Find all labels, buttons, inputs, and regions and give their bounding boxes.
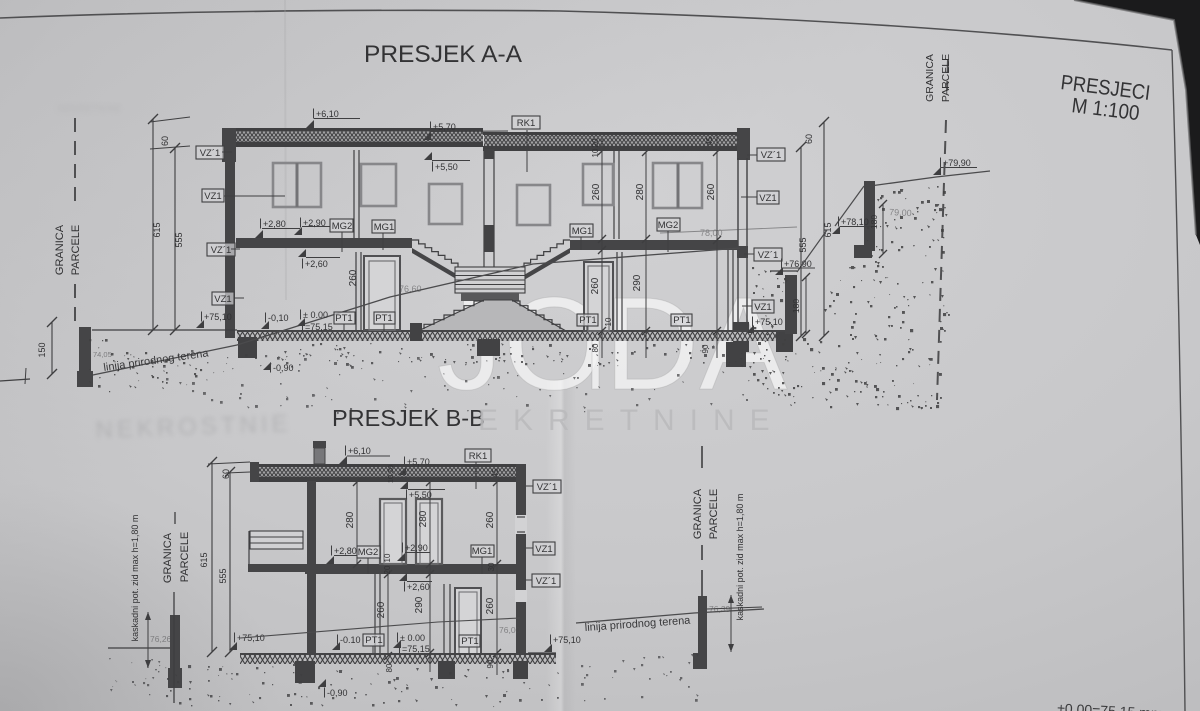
svg-text:555: 555 — [798, 237, 808, 252]
svg-text:+2,60: +2,60 — [407, 582, 430, 592]
svg-text:RK1: RK1 — [469, 451, 487, 462]
svg-text:10: 10 — [386, 475, 395, 483]
svg-text:76,26: 76,26 — [150, 634, 172, 644]
svg-text:GRANICA: GRANICA — [54, 224, 66, 275]
svg-text:+5,70: +5,70 — [407, 457, 430, 467]
svg-text:280: 280 — [345, 511, 356, 528]
svg-text:NEKRETNINE: NEKRETNINE — [58, 103, 122, 115]
svg-text:PARCELE: PARCELE — [179, 532, 191, 583]
svg-text:10: 10 — [591, 148, 600, 157]
svg-text:RK1: RK1 — [517, 118, 535, 129]
svg-text:260: 260 — [376, 601, 387, 618]
svg-text:260: 260 — [591, 183, 602, 200]
svg-text:80: 80 — [385, 663, 394, 672]
svg-text:PARCELE: PARCELE — [708, 489, 720, 540]
svg-text:+75,10: +75,10 — [204, 312, 232, 322]
svg-text:+6,10: +6,10 — [348, 446, 371, 456]
svg-text:GRANICA: GRANICA — [692, 488, 704, 539]
svg-text:+6,10: +6,10 — [316, 109, 339, 119]
svg-text:VZ´1: VZ´1 — [537, 482, 558, 493]
svg-text:260: 260 — [590, 277, 601, 294]
svg-text:PT1: PT1 — [461, 636, 478, 647]
svg-text:78,00: 78,00 — [700, 228, 723, 238]
svg-text:=75,15: =75,15 — [402, 644, 430, 654]
svg-text:76,00: 76,00 — [499, 625, 521, 635]
svg-text:-0,90: -0,90 — [327, 688, 348, 698]
svg-text:+2,90: +2,90 — [405, 543, 428, 553]
svg-text:VZ1: VZ1 — [204, 191, 221, 202]
svg-text:615: 615 — [152, 222, 162, 237]
svg-text:45: 45 — [491, 468, 500, 477]
svg-text:60: 60 — [221, 469, 231, 479]
svg-text:-0.10: -0.10 — [340, 635, 361, 645]
svg-text:PT1: PT1 — [673, 315, 690, 326]
svg-text:+5,70: +5,70 — [433, 122, 456, 132]
svg-text:74,05: 74,05 — [93, 350, 112, 359]
svg-text:60: 60 — [160, 136, 170, 146]
svg-text:MG1: MG1 — [374, 222, 395, 233]
svg-text:+2,80: +2,80 — [334, 546, 357, 556]
svg-text:60: 60 — [804, 134, 814, 144]
svg-text:VZ´1: VZ´1 — [536, 576, 557, 587]
svg-text:PARCELE: PARCELE — [940, 54, 952, 102]
svg-text:PT1: PT1 — [579, 315, 596, 326]
svg-text:PT1: PT1 — [375, 313, 392, 324]
svg-text:PRESJEK A-A: PRESJEK A-A — [364, 41, 523, 68]
svg-text:VZ´1: VZ´1 — [761, 150, 782, 161]
svg-text:80: 80 — [591, 343, 600, 352]
svg-text:260: 260 — [348, 269, 359, 286]
svg-text:10: 10 — [604, 317, 613, 326]
svg-text:GRANICA: GRANICA — [162, 532, 174, 583]
svg-text:20: 20 — [591, 138, 600, 147]
svg-text:+2,80: +2,80 — [263, 219, 286, 229]
svg-text:180: 180 — [869, 215, 879, 229]
svg-text:45: 45 — [705, 136, 714, 145]
svg-text:MG1: MG1 — [572, 226, 593, 237]
svg-text:EKRETNINE: EKRETNINE — [478, 404, 785, 437]
svg-text:260: 260 — [706, 183, 717, 200]
svg-text:76,60: 76,60 — [399, 284, 422, 294]
svg-text:20: 20 — [386, 465, 395, 473]
svg-text:MG2: MG2 — [358, 547, 379, 558]
svg-text:555: 555 — [174, 232, 184, 247]
svg-text:+78,10: +78,10 — [841, 217, 869, 227]
svg-text:=75,15: =75,15 — [305, 322, 333, 332]
svg-text:-0,90: -0,90 — [273, 363, 294, 373]
svg-text:615: 615 — [823, 222, 833, 237]
svg-text:+75,10: +75,10 — [755, 317, 783, 327]
svg-text:+5,50: +5,50 — [435, 162, 458, 172]
svg-text:GRANICA: GRANICA — [924, 54, 936, 102]
svg-text:+79,90: +79,90 — [943, 158, 971, 168]
svg-text:± 0.00: ± 0.00 — [400, 633, 425, 643]
svg-text:280: 280 — [418, 510, 429, 527]
svg-text:-0,10: -0,10 — [268, 313, 289, 323]
svg-text:290: 290 — [414, 596, 425, 613]
svg-text:VZ1: VZ1 — [214, 294, 231, 305]
svg-text:VZ1: VZ1 — [759, 193, 776, 204]
svg-text:± 0.00: ± 0.00 — [303, 310, 328, 320]
svg-text:VZ1: VZ1 — [535, 544, 552, 555]
svg-text:MG1: MG1 — [472, 546, 493, 557]
svg-text:+76,90: +76,90 — [784, 259, 812, 269]
svg-text:VZ´1: VZ´1 — [200, 148, 221, 159]
svg-text:30: 30 — [487, 562, 496, 571]
svg-text:180: 180 — [791, 299, 801, 313]
svg-text:kaskadni pot. zid max h=1,80 m: kaskadni pot. zid max h=1,80 m — [735, 494, 745, 621]
svg-text:PARCELE: PARCELE — [70, 225, 82, 276]
svg-text:280: 280 — [635, 183, 646, 200]
svg-text:+75,10: +75,10 — [553, 635, 581, 645]
svg-text:90: 90 — [486, 659, 495, 668]
svg-text:290: 290 — [632, 274, 643, 291]
svg-text:150: 150 — [37, 342, 47, 357]
svg-text:VZ´1: VZ´1 — [758, 250, 779, 261]
svg-text:PT1: PT1 — [335, 313, 352, 324]
svg-text:555: 555 — [218, 568, 228, 583]
svg-text:260: 260 — [485, 597, 496, 614]
svg-text:kaskadni pot. zid max h=1,80 m: kaskadni pot. zid max h=1,80 m — [130, 515, 140, 642]
svg-text:+5,50: +5,50 — [409, 490, 432, 500]
svg-text:10: 10 — [383, 553, 392, 562]
svg-text:+2,60: +2,60 — [305, 259, 328, 269]
svg-text:VZ´1: VZ´1 — [211, 245, 232, 256]
svg-text:PT1: PT1 — [365, 635, 382, 646]
svg-text:615: 615 — [199, 552, 209, 567]
svg-text:+2,90: +2,90 — [303, 218, 326, 228]
svg-text:MG2: MG2 — [658, 220, 679, 231]
svg-text:20: 20 — [383, 565, 392, 574]
svg-text:MG2: MG2 — [332, 221, 353, 232]
svg-text:260: 260 — [485, 511, 496, 528]
